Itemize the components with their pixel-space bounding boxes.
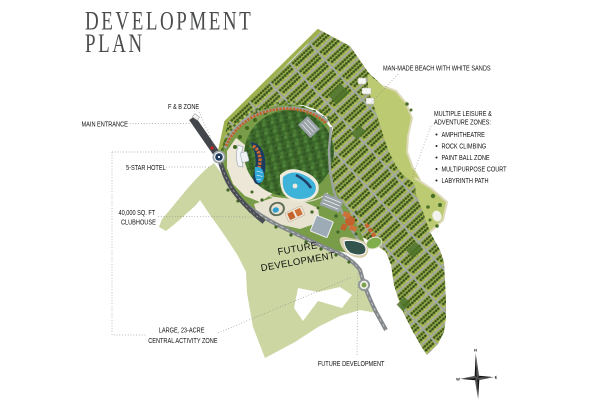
svg-text:40,000 SQ. FT: 40,000 SQ. FT (118, 209, 155, 217)
svg-text:F & B ZONE: F & B ZONE (168, 103, 200, 111)
svg-text:CENTRAL ACTIVITY ZONE: CENTRAL ACTIVITY ZONE (148, 337, 218, 345)
svg-text:FUTURE DEVELOPMENT: FUTURE DEVELOPMENT (318, 360, 385, 368)
svg-text:MAIN ENTRANCE: MAIN ENTRANCE (82, 121, 129, 129)
svg-text:MAN-MADE BEACH WITH WHITE SAND: MAN-MADE BEACH WITH WHITE SANDS (383, 65, 491, 73)
svg-text:ADVENTURE ZONES:: ADVENTURE ZONES: (434, 119, 491, 127)
svg-text:W: W (456, 377, 460, 381)
svg-text:PAINT BALL ZONE: PAINT BALL ZONE (441, 154, 490, 162)
svg-text:CLUBHOUSE: CLUBHOUSE (121, 219, 156, 227)
svg-text:LARGE, 23-ACRE: LARGE, 23-ACRE (159, 327, 205, 335)
svg-text:N: N (474, 348, 477, 352)
svg-text:LABYRINTH PATH: LABYRINTH PATH (441, 177, 488, 185)
svg-text:MULTIPLE LEISURE &: MULTIPLE LEISURE & (434, 110, 492, 118)
svg-text:MULTIPURPOSE COURT: MULTIPURPOSE COURT (441, 166, 506, 174)
svg-text:5-STAR HOTEL: 5-STAR HOTEL (126, 164, 166, 172)
svg-text:AMPHITHEATRE: AMPHITHEATRE (441, 131, 485, 139)
svg-text:ROCK CLIMBING: ROCK CLIMBING (441, 143, 486, 151)
svg-text:PLAN: PLAN (85, 29, 145, 58)
